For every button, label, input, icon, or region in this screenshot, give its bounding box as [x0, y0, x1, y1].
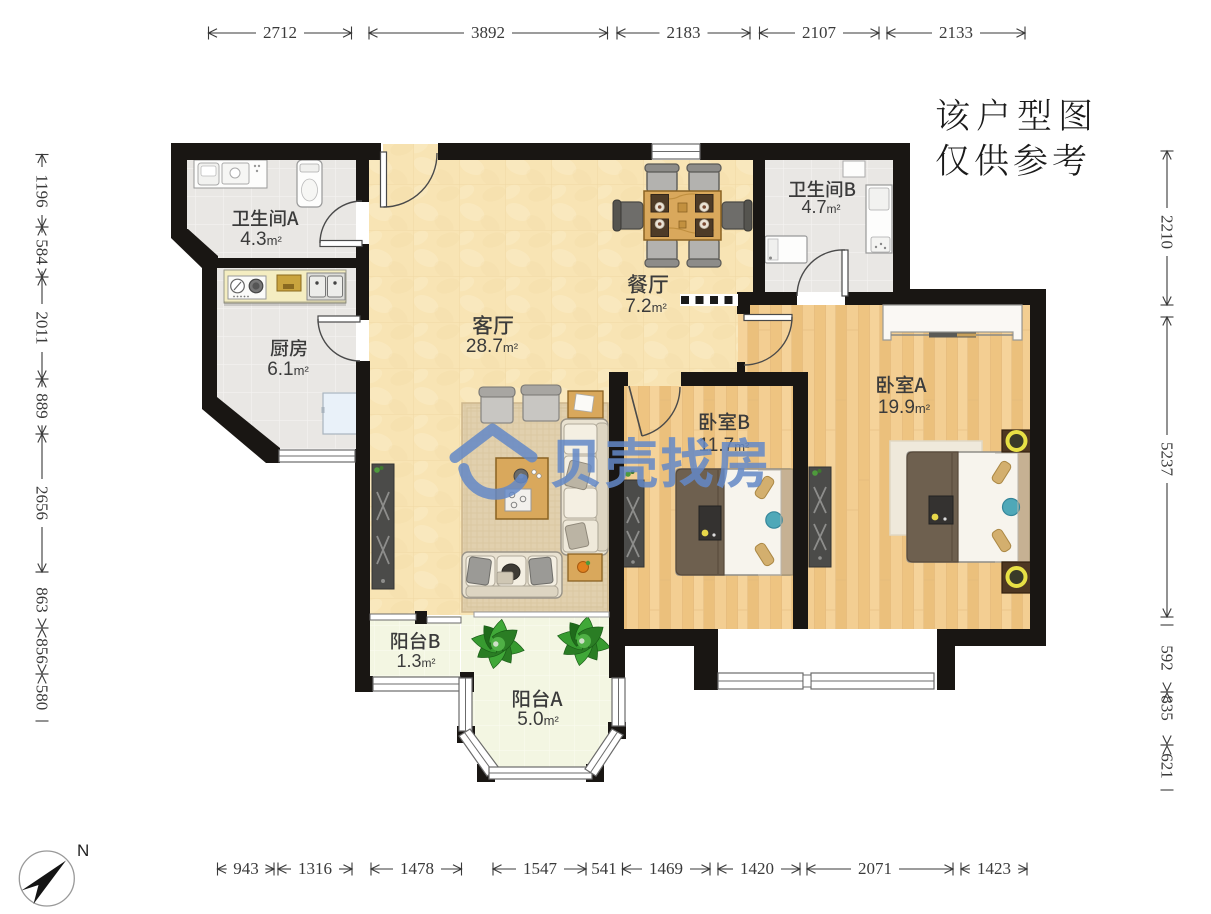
svg-text:5.0m²: 5.0m² [517, 709, 559, 730]
svg-text:6.1m²: 6.1m² [267, 359, 309, 380]
svg-text:856: 856 [33, 638, 52, 664]
svg-text:2071: 2071 [858, 859, 892, 878]
svg-text:1420: 1420 [740, 859, 774, 878]
svg-text:863: 863 [33, 587, 52, 613]
svg-text:2210: 2210 [1158, 215, 1177, 249]
svg-text:5237: 5237 [1158, 442, 1177, 477]
svg-text:2712: 2712 [263, 23, 297, 42]
svg-text:541: 541 [591, 859, 617, 878]
svg-text:2011: 2011 [33, 311, 52, 344]
svg-text:943: 943 [233, 859, 259, 878]
svg-text:1469: 1469 [649, 859, 683, 878]
svg-text:7.2m²: 7.2m² [625, 296, 667, 317]
svg-text:19.9m²: 19.9m² [878, 397, 931, 418]
svg-text:835: 835 [1158, 695, 1177, 721]
svg-text:889: 889 [33, 393, 52, 419]
svg-text:N: N [77, 841, 89, 860]
svg-text:3892: 3892 [471, 23, 505, 42]
svg-text:584: 584 [33, 239, 52, 265]
svg-text:592: 592 [1158, 645, 1177, 671]
svg-text:2183: 2183 [667, 23, 701, 42]
svg-text:4.3m²: 4.3m² [240, 229, 282, 250]
svg-text:1423: 1423 [977, 859, 1011, 878]
svg-text:2656: 2656 [33, 486, 52, 520]
svg-text:580: 580 [33, 685, 52, 711]
svg-text:2133: 2133 [939, 23, 973, 42]
svg-text:1478: 1478 [400, 859, 434, 878]
svg-text:28.7m²: 28.7m² [466, 336, 519, 357]
svg-text:1316: 1316 [298, 859, 332, 878]
svg-text:621: 621 [1158, 753, 1177, 779]
svg-text:1196: 1196 [33, 174, 52, 207]
svg-text:2107: 2107 [802, 23, 837, 42]
svg-text:1547: 1547 [523, 859, 558, 878]
